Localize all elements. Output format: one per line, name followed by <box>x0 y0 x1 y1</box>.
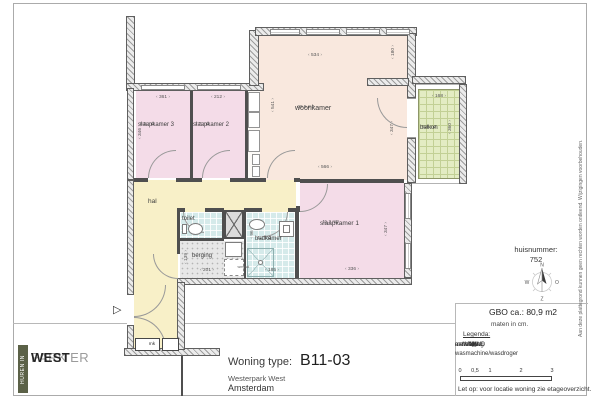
dimension: 185 <box>256 267 288 273</box>
woning-type: Woning type: B11-03 <box>228 352 350 370</box>
room-name: toilet <box>182 216 195 223</box>
bathroom-sink <box>283 225 290 233</box>
window <box>141 85 185 90</box>
woning-type-value: B11-03 <box>300 352 350 370</box>
dimension: 201 <box>191 267 223 273</box>
dimension: 346 <box>137 120 143 144</box>
huisnummer-label: huisnummer: <box>500 245 572 254</box>
legend-title: Legenda: <box>463 331 490 338</box>
window <box>270 29 300 35</box>
cabinet-unit <box>252 166 260 177</box>
room-name: berging <box>192 253 212 260</box>
wall-segment <box>190 91 193 178</box>
cabinet-unit <box>252 154 260 165</box>
dimension: 139 <box>183 245 189 269</box>
notes-divider-top <box>455 303 588 304</box>
window <box>405 243 411 269</box>
cabinet-unit <box>248 112 260 128</box>
woning-type-label: Woning type: <box>228 356 292 368</box>
dimension: 361 <box>147 94 179 100</box>
room-balkon <box>418 89 460 179</box>
room-name: hal <box>148 198 157 205</box>
wall-segment <box>300 179 404 183</box>
entrance-opening <box>127 295 134 325</box>
wall-hatched <box>407 138 416 183</box>
scale-tick-label: 0,5 <box>471 368 479 374</box>
wall-hatched <box>127 180 134 295</box>
dimension: 347 <box>389 116 395 140</box>
toilet-bowl <box>188 223 203 235</box>
window <box>405 193 411 219</box>
scale-tick-label: 2 <box>519 368 522 374</box>
wall-segment <box>222 208 224 239</box>
dimension: 541 <box>270 93 276 117</box>
wall-hatched <box>177 278 412 285</box>
floorplan-page: wm/wd mk ▷ woonkamer 29.5 m2 slaapkamer … <box>0 0 600 400</box>
dimension: 212 <box>202 94 234 100</box>
scale-bar: 0 0,5 1 2 3 <box>460 368 554 384</box>
wall-hatched <box>127 325 134 350</box>
compass-rose: N O Z W <box>522 261 562 301</box>
room-area: 11.2 m2 <box>322 220 339 225</box>
scale-bar-track <box>460 376 552 381</box>
scale-tick-label: 3 <box>550 368 553 374</box>
room-area: 4.1 m2 <box>257 236 271 241</box>
units-note: maten in cm. <box>491 321 528 328</box>
meterkast-box: mk <box>135 338 160 351</box>
window <box>306 29 340 35</box>
wmwd-label: wm/wd <box>238 263 250 272</box>
wall-hatched <box>412 76 466 84</box>
window <box>386 29 410 35</box>
logo-mark: HUREN IN <box>18 345 28 393</box>
dimension: 360 <box>447 115 453 139</box>
logo-vertical-text: HUREN IN <box>20 355 26 384</box>
compass-z: Z <box>540 297 543 302</box>
dimension: 336 <box>332 266 372 272</box>
dimension: 96 <box>249 221 255 245</box>
cabinet-unit <box>248 92 260 112</box>
wall-segment <box>288 208 296 212</box>
dimension: 347 <box>383 217 389 241</box>
dimension: 566 <box>305 164 345 170</box>
wall-segment <box>134 178 148 182</box>
compass-w: W <box>525 280 530 286</box>
cabinet-unit <box>248 130 260 152</box>
wall-hatched <box>126 16 135 86</box>
room-area: 7.7 m2 <box>195 122 209 127</box>
wall-segment <box>230 178 266 182</box>
shower-drain <box>258 260 263 265</box>
dimension: 180 <box>390 40 396 64</box>
wmwd-connection: wm/wd <box>224 259 244 276</box>
dimension: 168 <box>423 93 455 99</box>
legend-label: entree <box>455 341 472 350</box>
compass-o: O <box>555 280 559 286</box>
project-name: Westerpark West <box>228 374 285 383</box>
washer-box <box>225 242 242 257</box>
footer-divider <box>13 323 455 324</box>
location-note: Let op: voor locatie woning zie etageove… <box>458 386 591 393</box>
scale-tick-label: 1 <box>488 368 491 374</box>
logo-line-3: WEST <box>31 351 70 364</box>
wall-hatched <box>127 88 134 180</box>
dimension: 534 <box>295 52 335 58</box>
city-name: Amsterdam <box>228 383 274 393</box>
scale-segment <box>461 377 492 380</box>
shaft <box>224 210 244 239</box>
huisnummer-value: 752 <box>500 255 572 264</box>
balcony-door-opening <box>407 98 416 138</box>
wall-segment <box>177 208 180 254</box>
room-area: 5.9 m2 <box>422 125 436 130</box>
wall-segment <box>176 178 202 182</box>
disclaimer-text: Aan deze plattegrond kunnen geen rechten… <box>578 140 584 337</box>
gbo-value: GBO ca.: 80,9 m2 <box>489 307 557 317</box>
wall-segment <box>295 212 299 278</box>
entree-marker: ▷ <box>113 303 121 316</box>
toilet-tank <box>182 224 187 234</box>
wall-segment <box>180 238 224 241</box>
wall-hatched <box>367 78 409 86</box>
window <box>197 85 241 90</box>
meterkast-label: mk <box>148 340 154 349</box>
wall-hatched <box>459 84 467 184</box>
window <box>346 29 380 35</box>
wall-segment <box>244 208 262 212</box>
wall-hatched <box>249 30 259 86</box>
scale-tick-label: 0 <box>458 368 461 374</box>
room-area: 29.5 m2 <box>297 105 314 110</box>
closet-box <box>162 338 179 351</box>
wall-hatched <box>407 33 416 98</box>
